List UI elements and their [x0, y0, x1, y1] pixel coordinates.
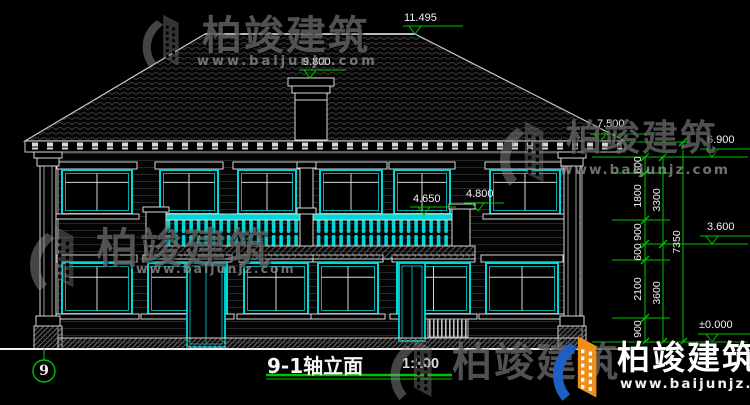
watermark-logo [133, 12, 197, 70]
dim-inner-2100: 2100 [632, 277, 644, 300]
watermark-url-text: www.baijunjz.com [197, 55, 378, 68]
dim-mid-3600: 3600 [651, 281, 663, 304]
dim-mid-3300: 3300 [651, 188, 663, 211]
elevation-label-balcony-rail: 4.650 [413, 193, 441, 205]
elevation-label-ridge: 11.495 [404, 12, 437, 24]
dim-inner-600b: 600 [632, 243, 644, 261]
dim-inner-1800: 1800 [632, 184, 644, 207]
watermark-url-text: www.baijunjz.com [620, 378, 750, 392]
watermark-logo [544, 333, 616, 403]
dim-inner-900a: 900 [632, 223, 644, 241]
elevation-label-second-floor: 3.600 [707, 221, 735, 233]
dim-outer-7350: 7350 [671, 230, 683, 253]
watermark-brand-text: 柏竣建筑 [566, 121, 718, 157]
watermark-brand-text: 柏竣建筑 [202, 16, 370, 56]
watermark-logo [22, 222, 92, 294]
elevation-label-balcony-pier: 4.800 [466, 188, 494, 200]
watermark-logo [492, 112, 562, 194]
elevation-label-ground: ±0.000 [699, 319, 733, 331]
cad-elevation-canvas: 11.495 9.800 7.500 6.900 4.650 4.800 3.6… [0, 0, 750, 405]
watermark-url-text: www.baijunjz.com [560, 164, 730, 178]
dim-inner-900b: 900 [632, 320, 644, 338]
drawing-title: 9-1轴立面 [267, 350, 363, 379]
watermark-logo [383, 336, 449, 402]
watermark-url-text: www.baijunjz.com [136, 263, 296, 276]
watermark-brand-text: 柏竣建筑 [617, 341, 750, 374]
axis-bubble-label: 9 [39, 363, 49, 379]
chimney [288, 78, 334, 140]
